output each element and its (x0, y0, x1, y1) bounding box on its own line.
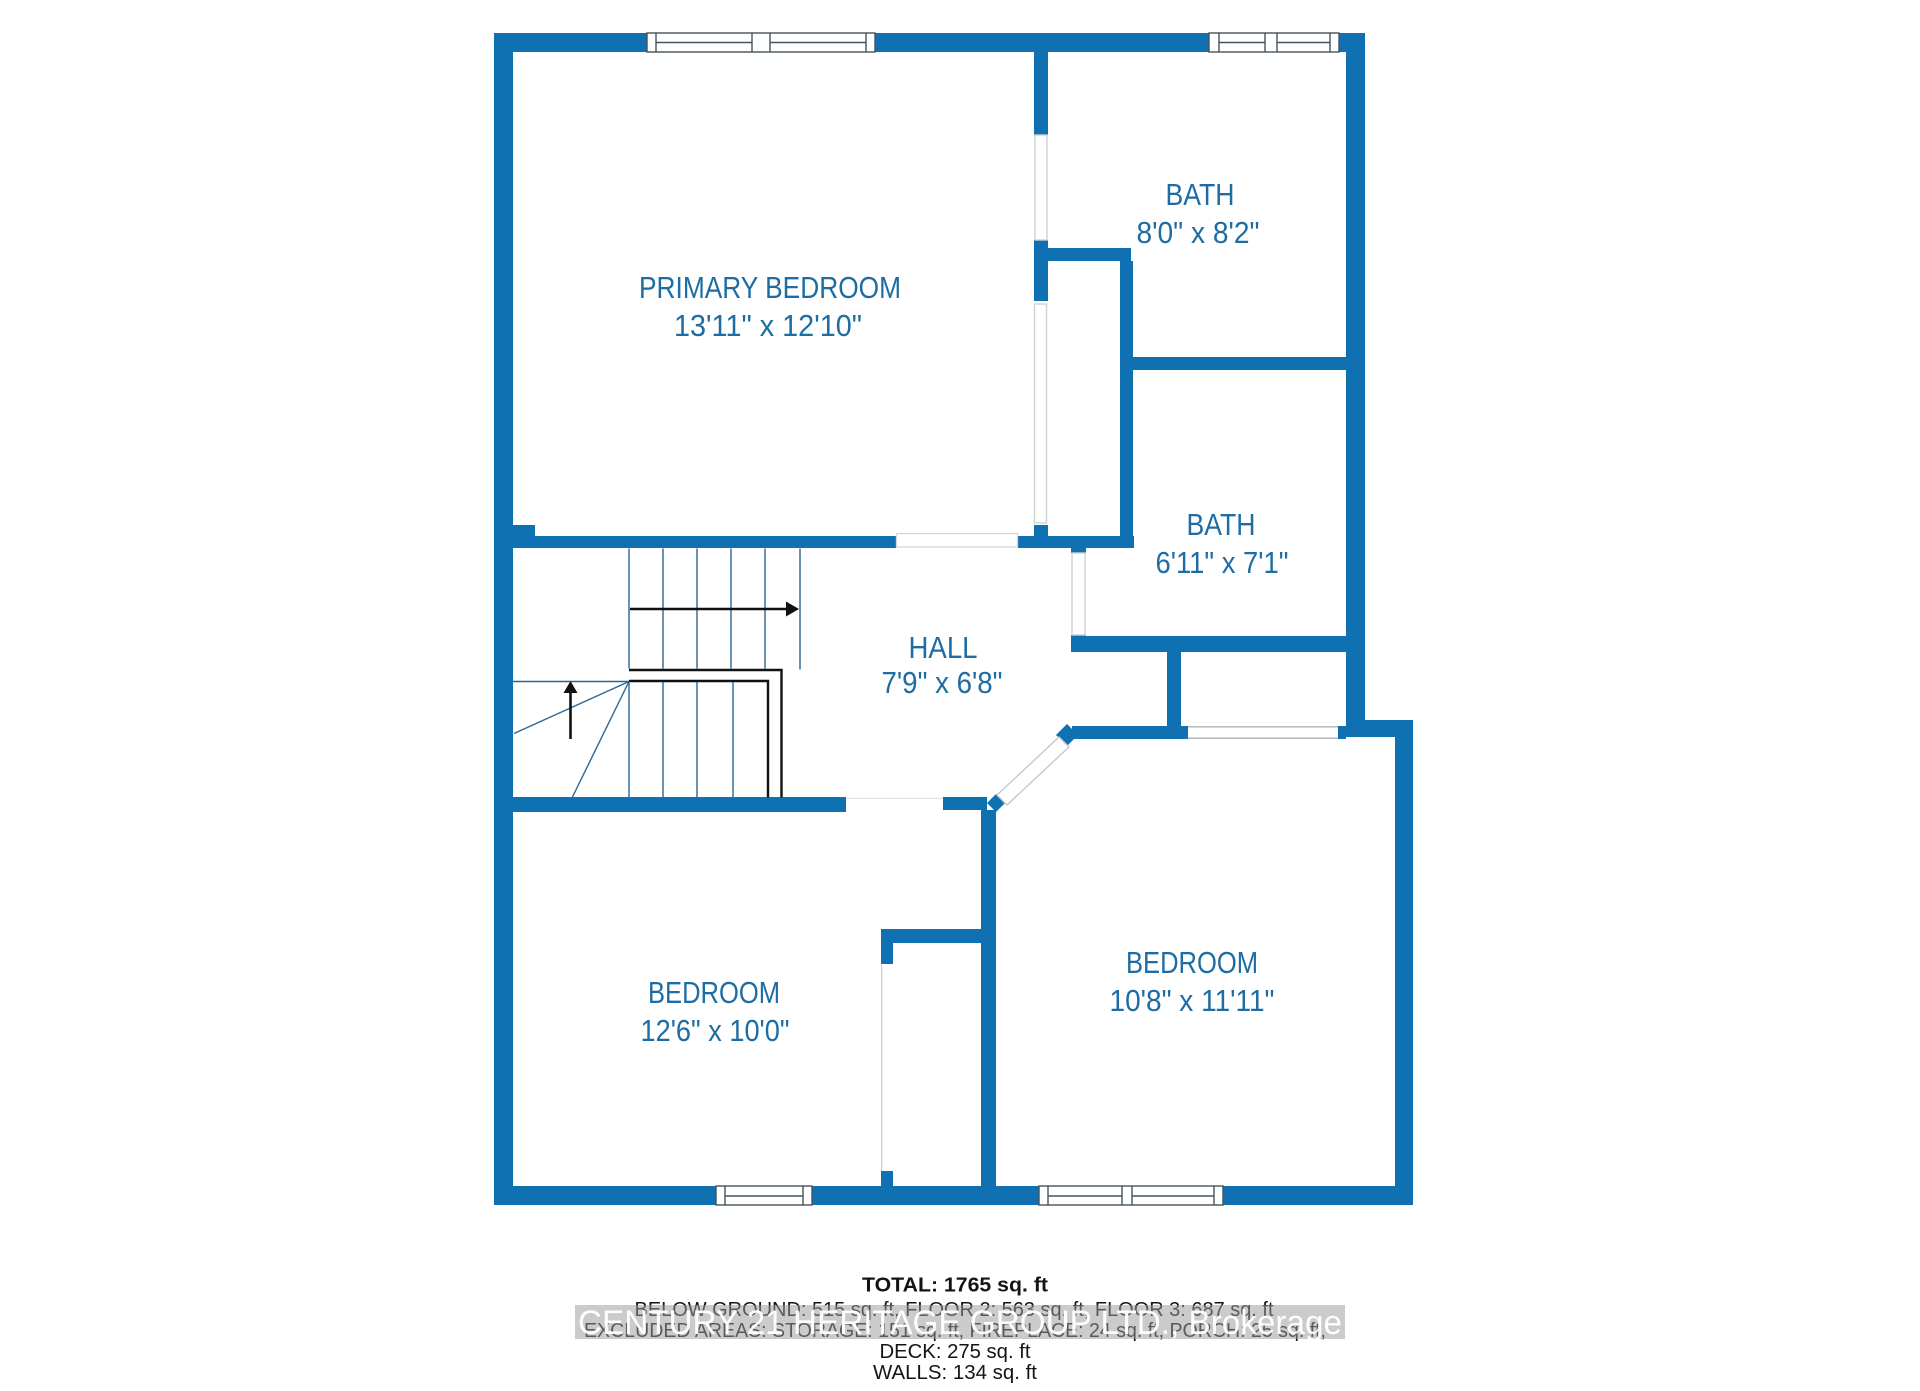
svg-text:BATH: BATH (1166, 177, 1235, 212)
svg-text:HALL: HALL (909, 630, 978, 665)
svg-text:DECK: 275 sq. ft: DECK: 275 sq. ft (880, 1340, 1031, 1363)
svg-text:12'6" x 10'0": 12'6" x 10'0" (641, 1013, 790, 1048)
svg-text:TOTAL: 1765 sq. ft: TOTAL: 1765 sq. ft (862, 1274, 1048, 1297)
svg-text:BEDROOM: BEDROOM (1126, 945, 1258, 980)
svg-text:6'11" x 7'1": 6'11" x 7'1" (1156, 545, 1289, 580)
svg-text:CENTURY 21 HERITAGE GROUP LTD.: CENTURY 21 HERITAGE GROUP LTD., Brokerag… (578, 1304, 1342, 1342)
svg-text:8'0" x 8'2": 8'0" x 8'2" (1137, 215, 1260, 250)
svg-text:BEDROOM: BEDROOM (648, 975, 780, 1010)
svg-text:10'8" x 11'11": 10'8" x 11'11" (1110, 983, 1275, 1018)
svg-text:13'11" x 12'10": 13'11" x 12'10" (674, 308, 862, 343)
svg-text:7'9" x 6'8": 7'9" x 6'8" (882, 665, 1003, 700)
svg-text:WALLS: 134 sq. ft: WALLS: 134 sq. ft (873, 1361, 1037, 1384)
svg-text:PRIMARY BEDROOM: PRIMARY BEDROOM (639, 270, 901, 305)
svg-text:BATH: BATH (1187, 507, 1256, 542)
